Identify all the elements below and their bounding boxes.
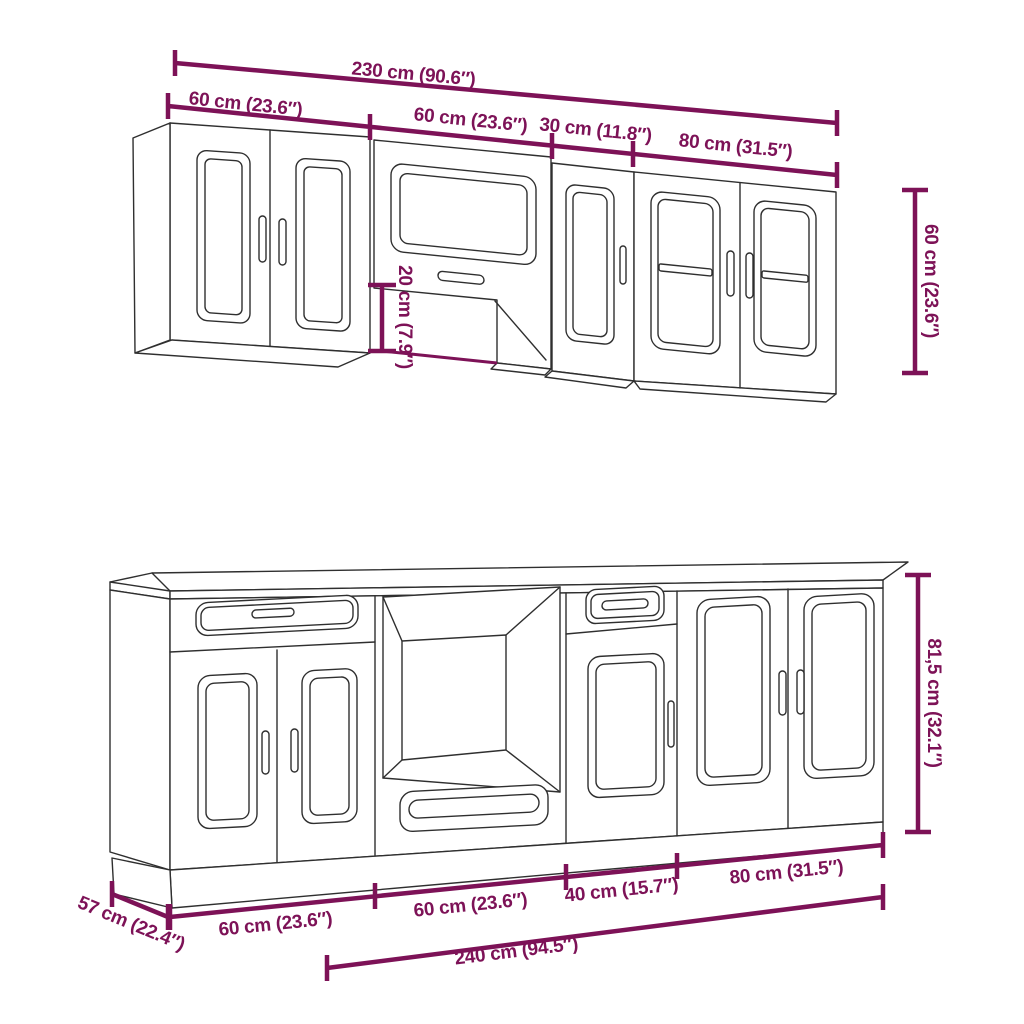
door-handle	[797, 670, 804, 714]
diagram-canvas: 230 cm (90.6″) 60 cm (23.6″) 60 cm (23.6…	[0, 0, 1024, 1024]
wall-segment-4-label: 80 cm (31.5″)	[678, 130, 794, 163]
base-cabinet-oven-60	[383, 587, 560, 832]
drawer-front	[586, 586, 664, 624]
door-handle	[746, 253, 753, 298]
base-segment-2-label: 60 cm (23.6″)	[413, 889, 529, 921]
base-segment-4-label: 80 cm (31.5″)	[729, 856, 845, 888]
door-handle	[727, 251, 734, 296]
base-segment-1-label: 60 cm (23.6″)	[218, 908, 334, 940]
wall-segment-3-label: 30 cm (11.8″)	[538, 114, 653, 146]
wall-cabinet-30	[545, 163, 634, 388]
kitchen-dimension-diagram: 230 cm (90.6″) 60 cm (23.6″) 60 cm (23.6…	[0, 0, 1024, 1024]
base-side-panel	[110, 590, 170, 870]
wall-height-label: 60 cm (23.6″)	[920, 224, 941, 338]
door-handle	[262, 731, 269, 774]
wall-cabinet-60-left-side-panel	[133, 123, 170, 353]
base-segment-3-label: 40 cm (15.7″)	[564, 874, 680, 906]
hood-glass-door	[391, 163, 536, 265]
door-handle	[779, 671, 786, 715]
dim-line-hood-height	[368, 285, 396, 351]
door-handle	[259, 216, 266, 262]
wall-cabinet-80	[634, 172, 836, 402]
door-handle	[620, 246, 626, 284]
hood-height-label: 20 cm (7.9″)	[394, 265, 415, 369]
oven-drawer-front	[400, 784, 548, 832]
base-total-width-label: 240 cm (94.5″)	[453, 934, 579, 970]
door-handle	[668, 701, 674, 747]
wall-cabinet-60-left	[133, 123, 370, 367]
door-handle	[291, 729, 298, 772]
door-handle	[279, 219, 286, 265]
base-height-label: 81,5 cm (32.1″)	[923, 638, 944, 767]
